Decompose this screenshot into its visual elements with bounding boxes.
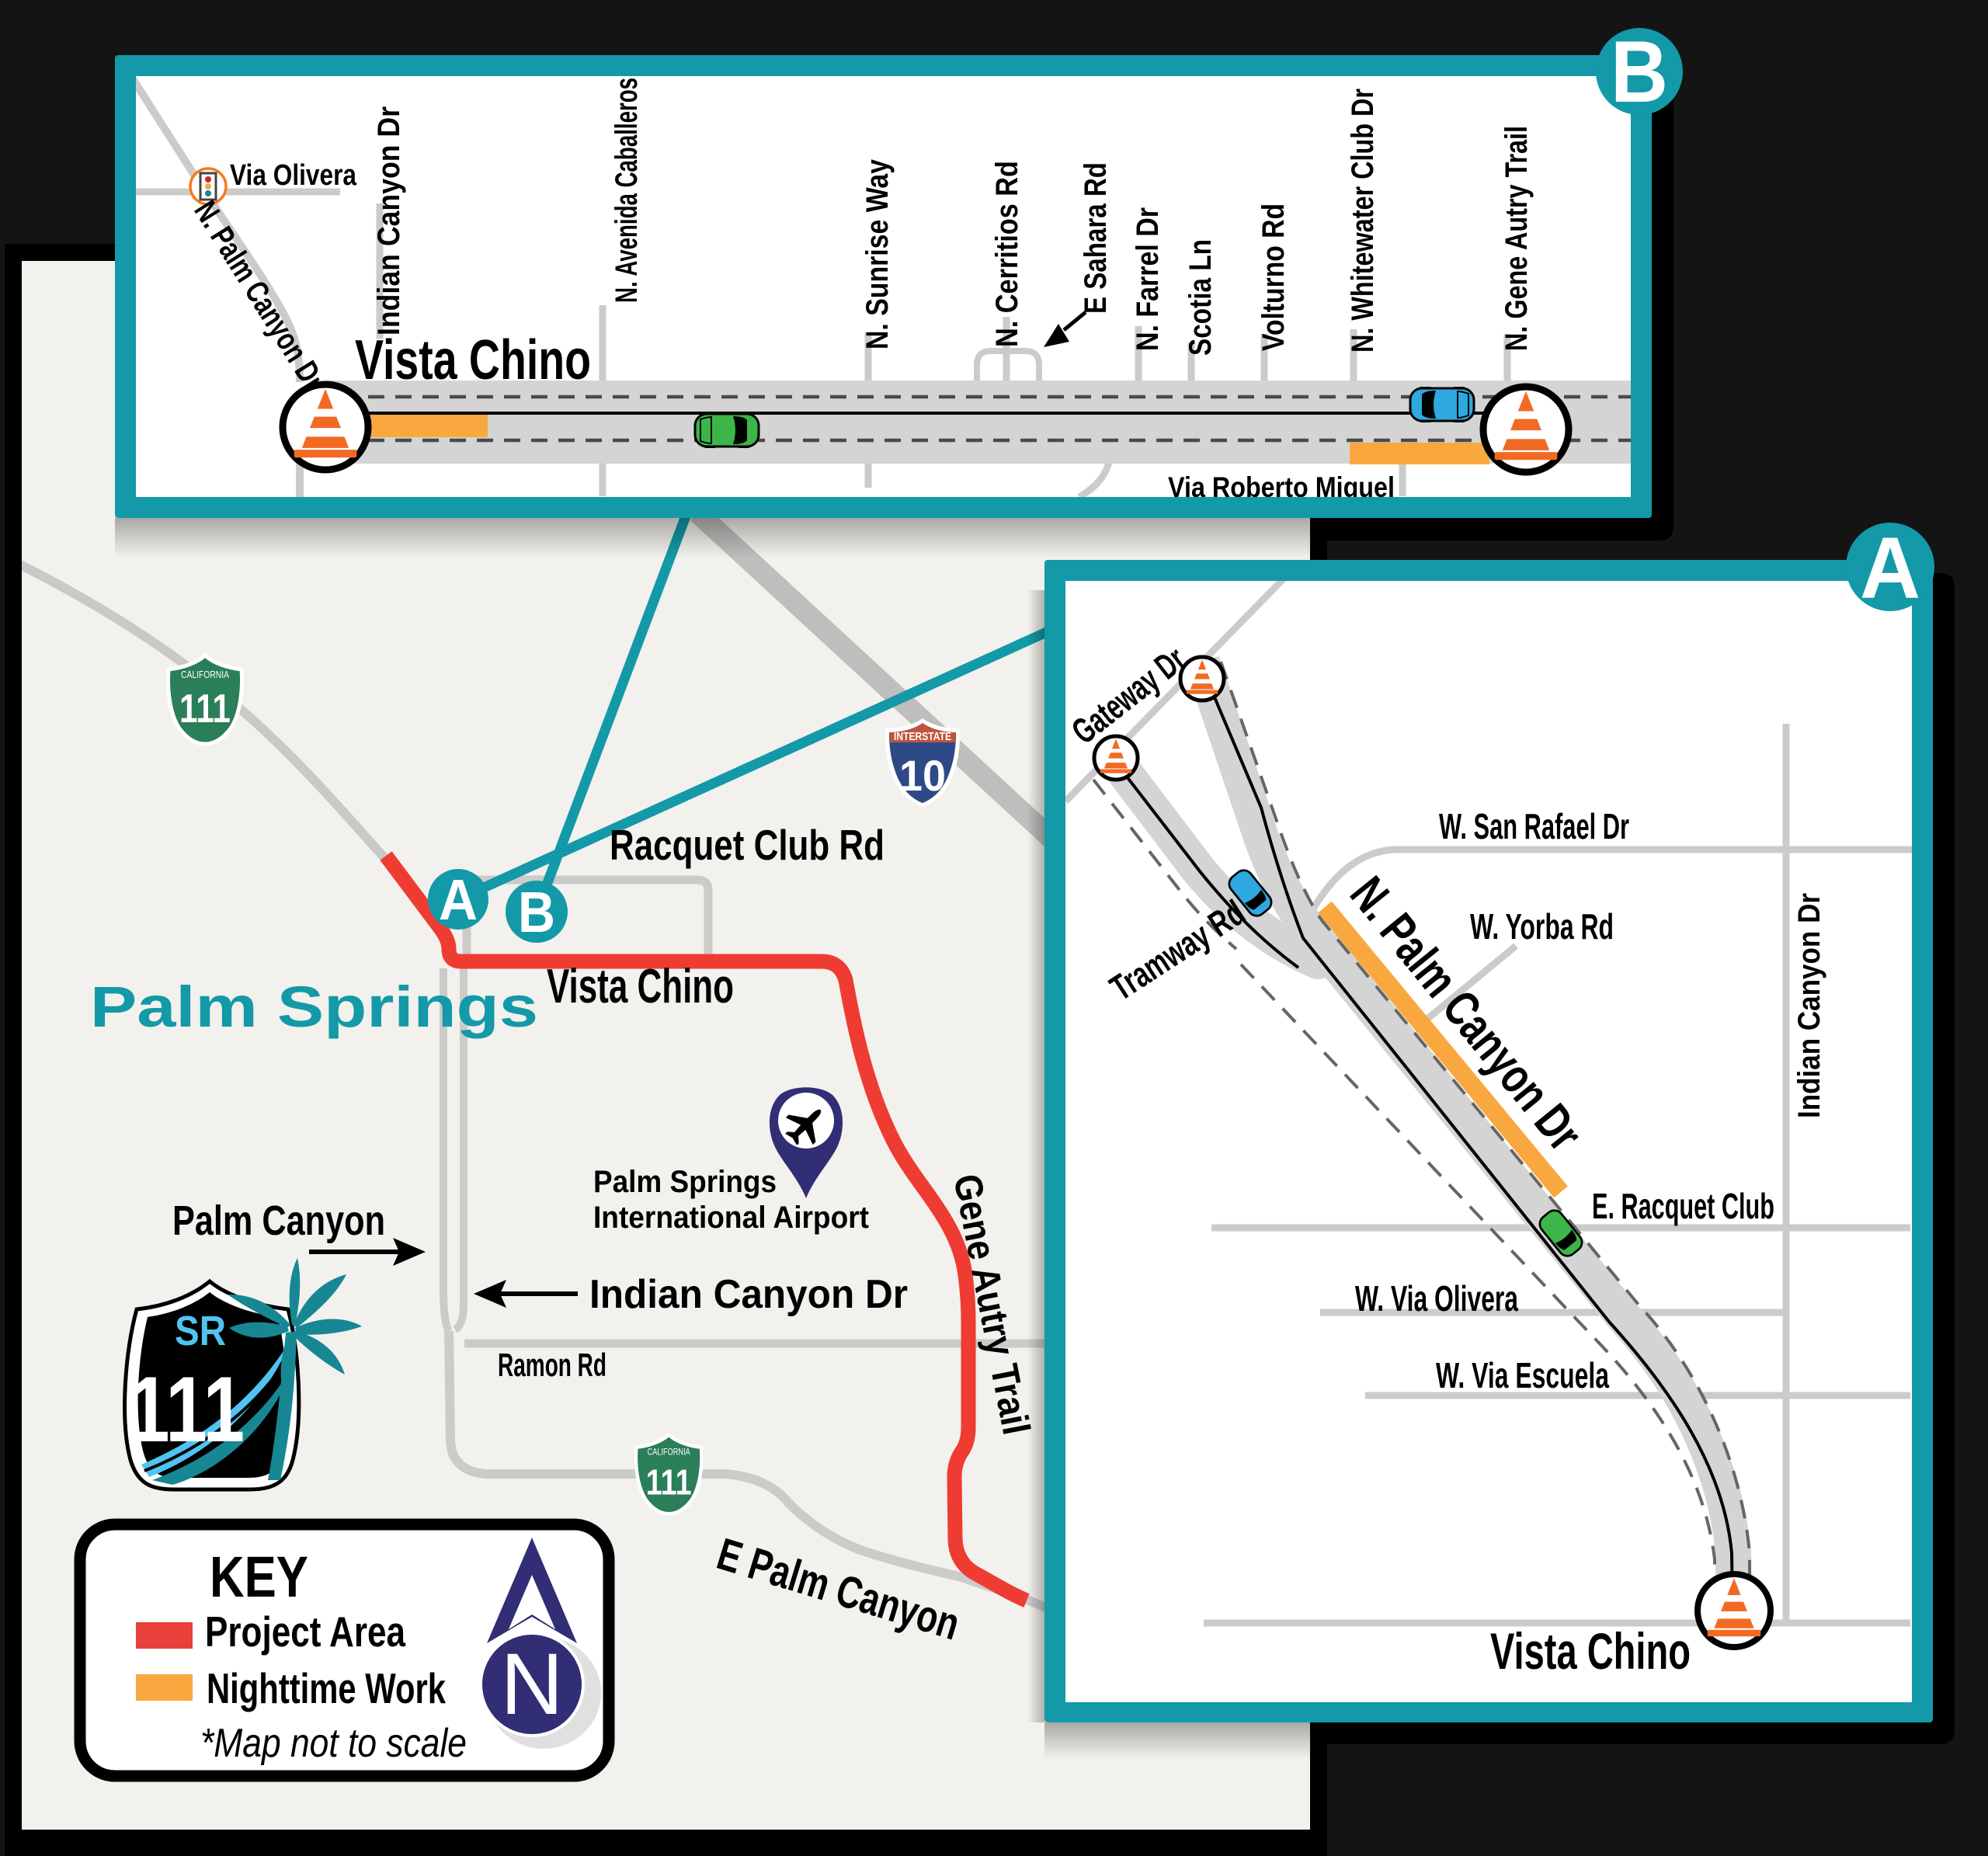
svg-text:CALIFORNIA: CALIFORNIA (181, 669, 229, 680)
svg-text:Palm Canyon: Palm Canyon (172, 1197, 385, 1244)
svg-text:INTERSTATE: INTERSTATE (894, 730, 951, 743)
svg-text:N. Avenida Caballeros: N. Avenida Caballeros (610, 78, 644, 303)
svg-text:E Sahara Rd: E Sahara Rd (1079, 162, 1113, 314)
svg-text:Ramon Rd: Ramon Rd (498, 1347, 606, 1383)
svg-text:N. Farrel Dr: N. Farrel Dr (1131, 207, 1165, 351)
svg-text:Palm Springs: Palm Springs (593, 1165, 777, 1199)
svg-text:W. Via Escuela: W. Via Escuela (1436, 1355, 1609, 1395)
svg-text:Scotia Ln: Scotia Ln (1183, 239, 1218, 356)
svg-text:N. Cerritios Rd: N. Cerritios Rd (990, 161, 1024, 347)
svg-text:N. Gene Autry Trail: N. Gene Autry Trail (1500, 126, 1534, 351)
svg-text:E. Racquet Club: E. Racquet Club (1592, 1186, 1774, 1226)
svg-text:B: B (1611, 23, 1668, 120)
svg-text:Volturno Rd: Volturno Rd (1256, 203, 1291, 351)
svg-text:Vista Chino: Vista Chino (547, 960, 734, 1013)
svg-text:B: B (518, 880, 555, 944)
svg-text:Via Olivera: Via Olivera (230, 159, 357, 192)
svg-text:N: N (501, 1635, 564, 1733)
svg-text:A: A (439, 867, 478, 932)
svg-text:W. San Rafael Dr: W. San Rafael Dr (1439, 806, 1629, 846)
svg-text:Racquet Club Rd: Racquet Club Rd (610, 821, 885, 869)
svg-text:Indian Canyon Dr: Indian Canyon Dr (1792, 893, 1826, 1118)
svg-text:N. Sunrise Way: N. Sunrise Way (860, 158, 895, 349)
svg-text:Project Area: Project Area (205, 1607, 405, 1656)
svg-text:Vista Chino: Vista Chino (1490, 1622, 1691, 1680)
svg-text:111: 111 (646, 1462, 692, 1502)
svg-text:KEY: KEY (210, 1545, 308, 1609)
svg-text:N. Whitewater Club Dr: N. Whitewater Club Dr (1346, 89, 1380, 353)
svg-text:Indian Canyon Dr: Indian Canyon Dr (589, 1272, 908, 1317)
svg-text:CALIFORNIA: CALIFORNIA (648, 1448, 690, 1458)
svg-text:International Airport: International Airport (593, 1201, 869, 1235)
svg-text:W. Yorba Rd: W. Yorba Rd (1470, 906, 1614, 947)
svg-text:Vista Chino: Vista Chino (355, 329, 591, 391)
svg-text:111: 111 (179, 686, 231, 732)
svg-text:10: 10 (899, 751, 946, 800)
svg-text:SR: SR (175, 1308, 226, 1354)
svg-text:111: 111 (128, 1357, 245, 1462)
svg-text:Palm Springs: Palm Springs (90, 975, 538, 1039)
svg-text:Nighttime Work: Nighttime Work (207, 1664, 446, 1712)
svg-text:*Map not to scale: *Map not to scale (200, 1721, 467, 1766)
svg-text:Indian Canyon Dr: Indian Canyon Dr (372, 106, 406, 335)
svg-text:W. Via Olivera: W. Via Olivera (1355, 1278, 1518, 1319)
svg-text:A: A (1860, 520, 1920, 617)
